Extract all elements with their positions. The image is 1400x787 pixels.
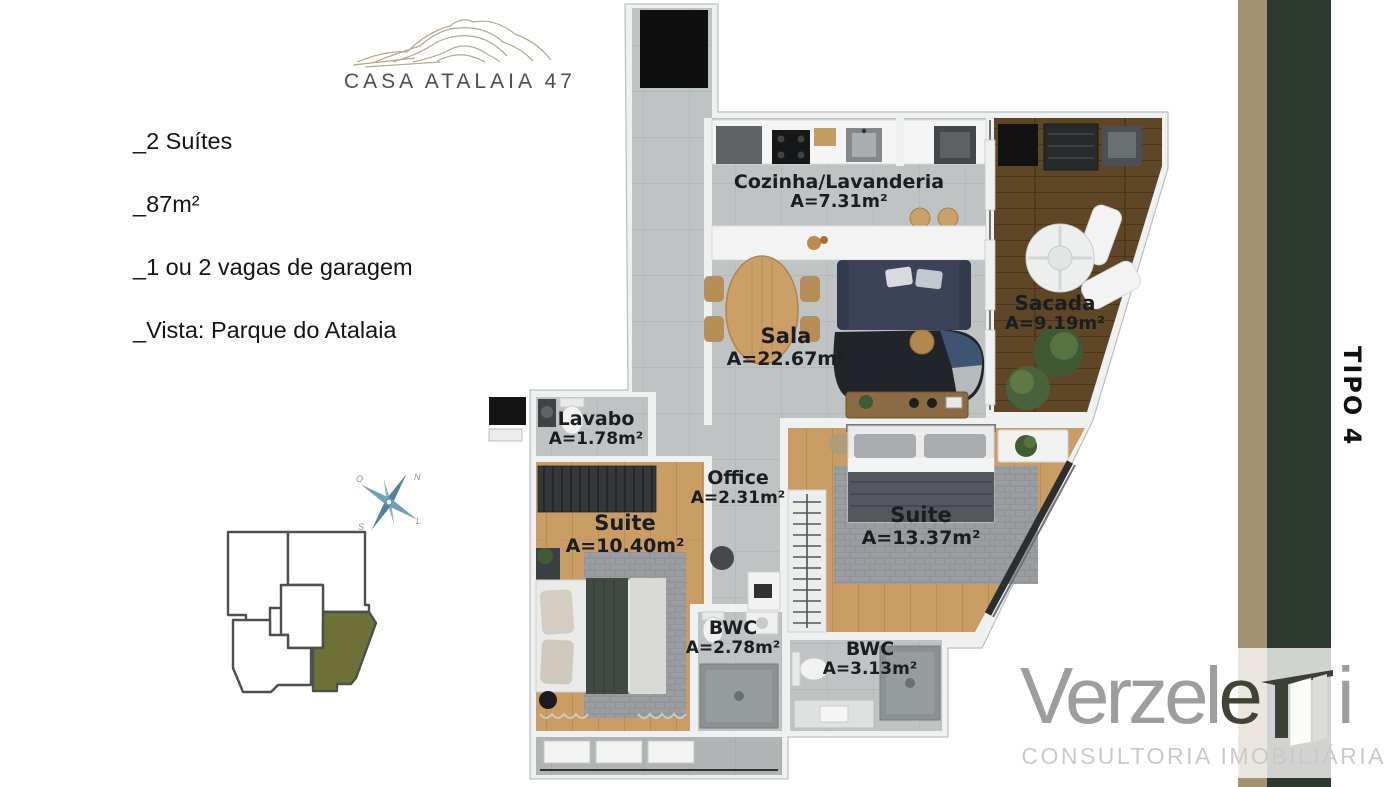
mountain-contours-icon [345,12,575,68]
tv-console [846,392,968,418]
room-label-office: Office A=2.31m² [691,468,786,508]
feature-item-area: _87m² [133,191,413,218]
room-label-bwc-2: BWC A=3.13m² [823,639,918,679]
room-label-suite-2: Suite A=13.37m² [862,504,981,549]
room-label-lavabo: Lavabo A=1.78m² [549,409,644,449]
door-tt-icon [1261,666,1333,746]
unit-type-label: TIPO 4 [1338,346,1366,446]
brand-text-dark: e [1218,656,1259,736]
feature-item-garage: _1 ou 2 vagas de garagem [133,254,413,281]
brand-text-light: Verzel [1020,656,1218,736]
kitchen-counter [712,118,986,166]
room-label-sacada: Sacada A=9.19m² [1005,292,1105,335]
room-label-suite-1: Suite A=10.40m² [566,512,685,557]
sofa [837,260,971,330]
keyplan-highlighted-unit [313,612,376,691]
realtor-subtitle: CONSULTORIA IMOBILIÁRIA [1021,743,1386,770]
entry-corridor [640,10,708,88]
development-logo: CASA ATALAIA 47 [330,12,590,94]
feature-item-suites: _2 Suítes [133,128,413,155]
realtor-brand-name: Verzel e i [1020,656,1351,746]
realtor-brand-block: Verzel e i CONSULTORIA IMOBILIÁRIA [1010,648,1400,778]
room-label-sala: Sala A=22.67m² [727,325,846,370]
room-label-bwc-1: BWC A=2.78m² [686,618,781,658]
development-name: CASA ATALAIA 47 [330,70,590,94]
brand-text-i: i [1337,656,1351,736]
room-label-cozinha: Cozinha/Lavanderia A=7.31m² [734,172,944,213]
building-keyplan [213,460,438,705]
feature-item-view: _Vista: Parque do Atalaia [133,317,413,344]
page: Cozinha/Lavanderia A=7.31m² Sala A=22.67… [0,0,1400,787]
feature-list: _2 Suítes _87m² _1 ou 2 vagas de garagem… [133,128,413,380]
balcony-glass-wall [985,120,995,410]
